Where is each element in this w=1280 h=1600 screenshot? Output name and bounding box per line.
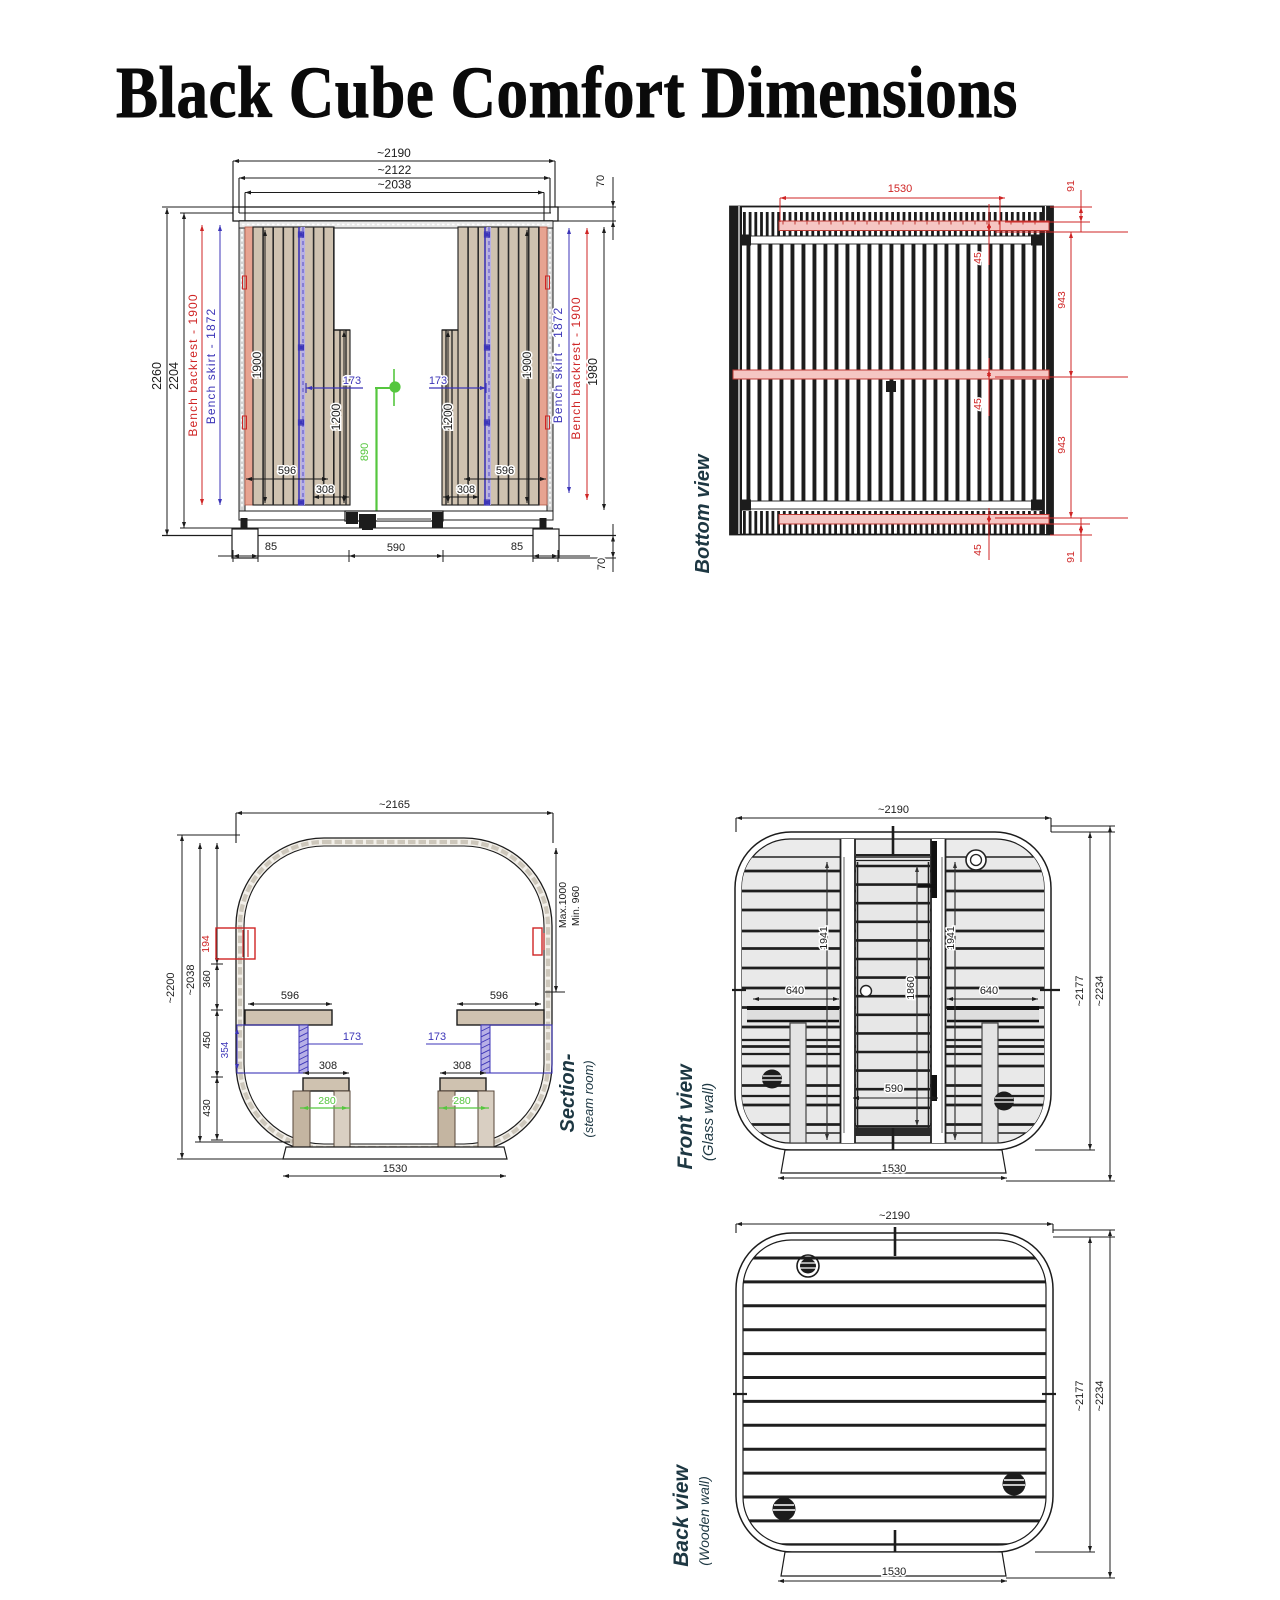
svg-text:Front view: Front view <box>674 1063 697 1170</box>
svg-text:1941: 1941 <box>945 926 957 950</box>
svg-text:(Wooden wall): (Wooden wall) <box>696 1476 712 1565</box>
svg-text:590: 590 <box>387 542 405 554</box>
svg-text:Bottom view: Bottom view <box>692 453 714 573</box>
svg-text:1900: 1900 <box>520 351 534 378</box>
svg-text:45: 45 <box>972 252 984 264</box>
svg-text:91: 91 <box>1065 180 1077 192</box>
svg-text:Min. 960: Min. 960 <box>570 886 582 926</box>
svg-text:308: 308 <box>316 484 334 496</box>
svg-text:280: 280 <box>453 1095 471 1107</box>
svg-text:85: 85 <box>265 541 277 553</box>
svg-text:1980: 1980 <box>586 358 600 386</box>
svg-text:~2190: ~2190 <box>879 1210 910 1222</box>
svg-text:1200: 1200 <box>441 403 455 430</box>
svg-text:596: 596 <box>496 465 514 477</box>
svg-text:1530: 1530 <box>383 1163 407 1175</box>
svg-text:596: 596 <box>281 990 299 1002</box>
svg-text:308: 308 <box>457 484 475 496</box>
svg-text:85: 85 <box>511 541 523 553</box>
svg-text:~2038: ~2038 <box>185 965 197 996</box>
svg-text:280: 280 <box>318 1095 336 1107</box>
svg-text:45: 45 <box>972 544 984 556</box>
svg-text:2260: 2260 <box>150 362 164 390</box>
svg-text:1860: 1860 <box>905 976 917 1000</box>
svg-text:Bench backrest - 1900: Bench backrest - 1900 <box>186 293 200 436</box>
svg-text:308: 308 <box>453 1060 471 1072</box>
svg-text:1530: 1530 <box>882 1163 906 1175</box>
svg-text:Max.1000: Max.1000 <box>557 882 569 928</box>
svg-text:194: 194 <box>200 935 212 953</box>
svg-text:(Glass wall): (Glass wall) <box>700 1083 717 1161</box>
svg-text:45: 45 <box>972 398 984 410</box>
svg-text:~2177: ~2177 <box>1074 976 1086 1007</box>
svg-text:1200: 1200 <box>329 403 343 430</box>
svg-text:~2190: ~2190 <box>878 804 909 816</box>
svg-text:890: 890 <box>359 443 371 461</box>
svg-text:1530: 1530 <box>882 1566 906 1578</box>
svg-text:~2122: ~2122 <box>378 163 412 177</box>
svg-text:596: 596 <box>490 990 508 1002</box>
svg-text:354: 354 <box>220 1041 231 1058</box>
svg-text:596: 596 <box>278 465 296 477</box>
svg-text:~2165: ~2165 <box>379 799 410 811</box>
svg-text:450: 450 <box>201 1031 213 1049</box>
svg-text:1900: 1900 <box>250 351 264 378</box>
svg-text:~2177: ~2177 <box>1074 1381 1086 1412</box>
svg-text:70: 70 <box>596 558 608 570</box>
svg-text:Bench skirt - 1872: Bench skirt - 1872 <box>551 307 565 424</box>
svg-text:1941: 1941 <box>818 926 830 950</box>
svg-text:~2200: ~2200 <box>165 973 177 1004</box>
svg-text:Back view: Back view <box>670 1464 693 1567</box>
svg-text:~2190: ~2190 <box>377 146 411 160</box>
svg-text:~2234: ~2234 <box>1094 1381 1106 1412</box>
svg-text:943: 943 <box>1056 291 1068 309</box>
svg-text:(steam room): (steam room) <box>581 1060 596 1137</box>
svg-text:173: 173 <box>429 375 447 387</box>
svg-text:~2038: ~2038 <box>378 178 412 192</box>
svg-text:91: 91 <box>1065 551 1077 563</box>
svg-text:2204: 2204 <box>167 362 181 390</box>
svg-text:640: 640 <box>786 985 804 997</box>
svg-text:Section-: Section- <box>557 1053 579 1132</box>
svg-text:360: 360 <box>201 970 213 988</box>
svg-text:430: 430 <box>201 1099 213 1117</box>
svg-text:Bench skirt - 1872: Bench skirt - 1872 <box>204 308 218 425</box>
svg-text:640: 640 <box>980 985 998 997</box>
svg-text:1530: 1530 <box>888 183 912 195</box>
svg-text:173: 173 <box>428 1031 446 1043</box>
svg-text:943: 943 <box>1056 436 1068 454</box>
svg-text:308: 308 <box>319 1060 337 1072</box>
svg-text:Bench backrest - 1900: Bench backrest - 1900 <box>569 296 583 439</box>
svg-text:~2234: ~2234 <box>1094 976 1106 1007</box>
svg-text:173: 173 <box>343 1031 361 1043</box>
svg-text:70: 70 <box>595 175 607 187</box>
svg-text:173: 173 <box>343 375 361 387</box>
svg-text:590: 590 <box>885 1083 903 1095</box>
